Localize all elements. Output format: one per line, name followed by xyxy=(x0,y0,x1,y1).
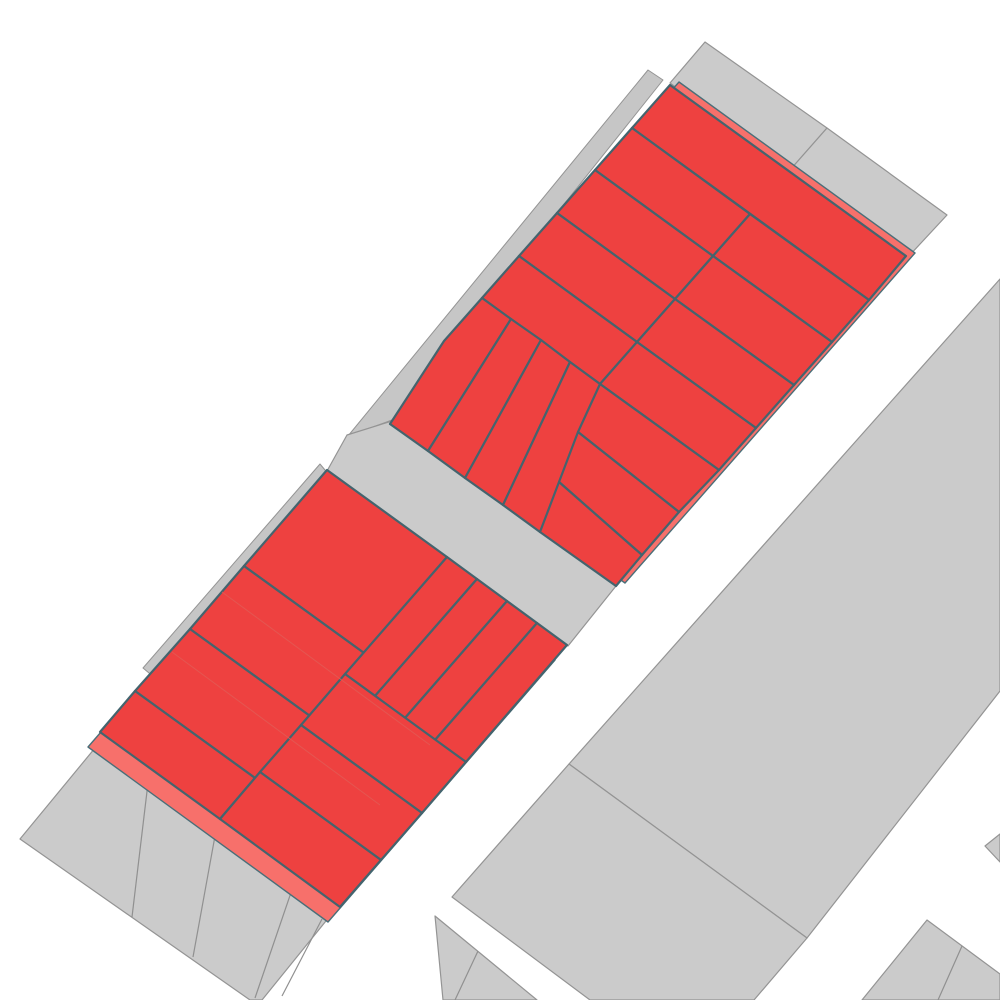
map-viewport[interactable] xyxy=(0,0,1000,1000)
parcel-map-canvas[interactable] xyxy=(0,0,1000,1000)
gray-parcel-bottom-right[interactable] xyxy=(862,920,1000,1000)
gray-triangle-right-edge[interactable] xyxy=(985,834,1000,862)
